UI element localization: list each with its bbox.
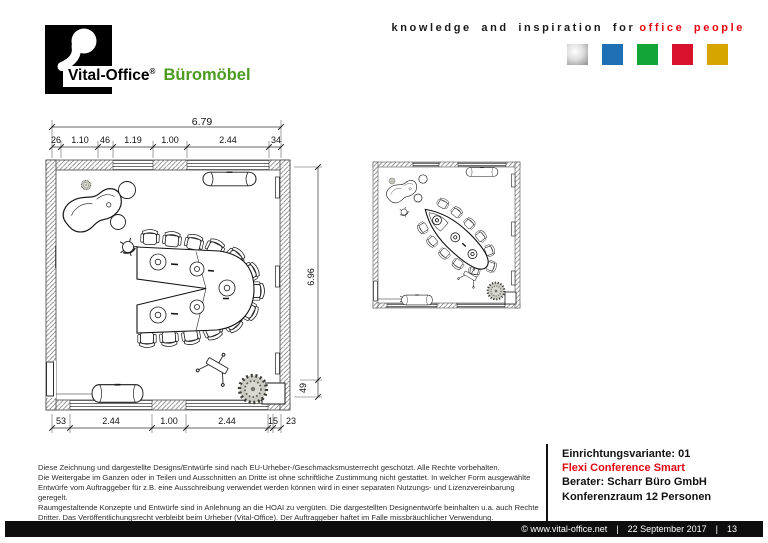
footer-url: © www.vital-office.net [521, 524, 607, 534]
info-divider [546, 444, 548, 521]
variant-label: Einrichtungsvariante: 01 [562, 447, 711, 461]
flipchart [196, 346, 238, 387]
dim-top-seg: 26 [51, 135, 61, 145]
brand-wordmark: Vital-Office® Büromöbel [63, 66, 251, 87]
product-name-label: Flexi Conference Smart [562, 461, 711, 475]
brand-name: Vital-Office® [63, 66, 157, 87]
dim-bottom-seg: 2.44 [102, 416, 120, 426]
footer-page-number: 13 [727, 524, 737, 534]
sideboard-bottom [92, 385, 143, 403]
main-room-furniture [58, 172, 266, 402]
plant [488, 283, 505, 300]
room-label: Konferenzraum 12 Personen [562, 490, 711, 504]
side-table [414, 194, 422, 202]
task-chair [117, 237, 140, 259]
footer-date: 22 September 2017 [628, 524, 707, 534]
dim-right-total: 6.96 [306, 268, 316, 286]
sideboard-top [466, 168, 498, 177]
sideboard-top [203, 172, 256, 186]
disclaimer-line: Entwürfe vom Auftraggeber für z.B. eine … [38, 483, 543, 503]
side-table [111, 215, 126, 230]
disclaimer-line: Die Weitergabe im Ganzen oder in Teilen … [38, 473, 543, 483]
task-chair [398, 206, 411, 218]
variant-plan [373, 162, 520, 308]
dim-bottom-seg: 2.44 [218, 416, 236, 426]
catalog-page: Vital-Office® Büromöbel knowledge and in… [0, 0, 768, 543]
consultant-label: Berater: Scharr Büro GmbH [562, 475, 711, 489]
info-panel: Einrichtungsvariante: 01 Flexi Conferenc… [562, 447, 711, 504]
dim-bottom-seg: 15 [268, 416, 278, 426]
disclaimer-line: Diese Zeichnung und dargestellte Designs… [38, 463, 543, 473]
dim-top-seg: 1.00 [161, 135, 179, 145]
brand-product: Büromöbel [163, 66, 250, 85]
footer-bar: © www.vital-office.net | 22 September 20… [5, 521, 763, 537]
side-table [119, 182, 136, 199]
conference-table-u [137, 229, 265, 347]
dim-bottom-seg: 23 [286, 416, 296, 426]
dim-top-seg: 2.44 [219, 135, 237, 145]
dim-top-seg: 1.19 [124, 135, 142, 145]
disclaimer-line: Raumgestaltende Konzepte und Entwürfe si… [38, 503, 543, 513]
footer-separator: | [616, 524, 618, 534]
small-plant [389, 178, 395, 184]
corner-column [505, 292, 516, 304]
legal-disclaimer: Diese Zeichnung und dargestellte Designs… [38, 463, 543, 524]
plant [240, 376, 267, 403]
sideboard-bottom [402, 295, 433, 305]
footer-separator: | [716, 524, 718, 534]
dim-right-seg: 49 [298, 383, 308, 393]
side-table [419, 175, 427, 183]
small-plant [81, 180, 90, 189]
registered-mark: ® [150, 67, 156, 76]
conference-table-pod [409, 191, 511, 291]
dim-bottom-seg: 1.00 [160, 416, 178, 426]
dim-top-total: 6.79 [192, 116, 212, 128]
dim-top-seg: 46 [100, 135, 110, 145]
wall-fitting [276, 177, 280, 374]
window [113, 161, 269, 170]
dim-top-seg: 1.10 [71, 135, 89, 145]
dim-bottom-seg: 53 [56, 416, 66, 426]
dim-top-seg: 34 [271, 135, 281, 145]
